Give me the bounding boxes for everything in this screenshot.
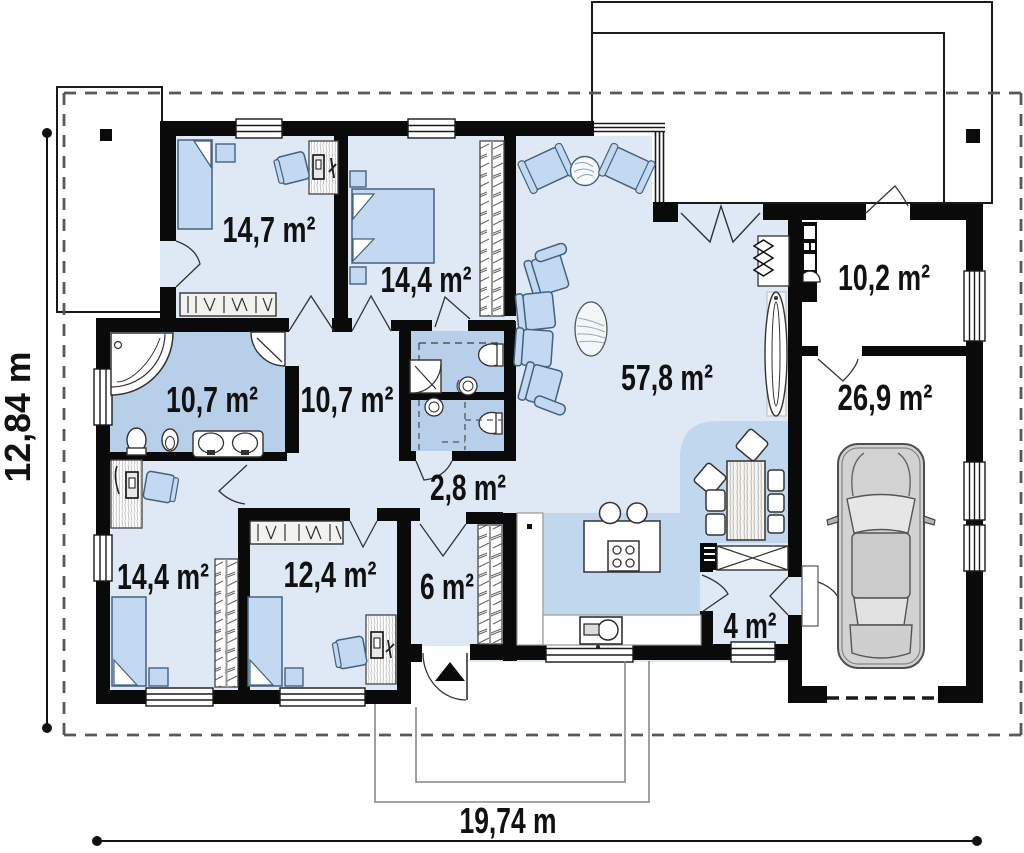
- svg-text:19,74 m: 19,74 m: [460, 800, 557, 841]
- svg-text:10,2 m²: 10,2 m²: [838, 257, 930, 298]
- svg-text:14,7 m²: 14,7 m²: [223, 209, 316, 250]
- svg-text:4 m²: 4 m²: [724, 605, 777, 646]
- svg-text:10,7 m²: 10,7 m²: [166, 379, 258, 420]
- svg-text:12,4 m²: 12,4 m²: [284, 554, 377, 595]
- svg-text:6 m²: 6 m²: [420, 566, 474, 607]
- svg-text:14,4 m²: 14,4 m²: [117, 556, 209, 597]
- svg-text:57,8 m²: 57,8 m²: [621, 357, 713, 398]
- svg-text:12,84 m: 12,84 m: [0, 352, 38, 483]
- svg-text:26,9 m²: 26,9 m²: [838, 377, 933, 418]
- svg-text:10,7 m²: 10,7 m²: [301, 379, 394, 420]
- svg-text:2,8 m²: 2,8 m²: [430, 467, 506, 508]
- svg-text:14,4 m²: 14,4 m²: [381, 259, 472, 300]
